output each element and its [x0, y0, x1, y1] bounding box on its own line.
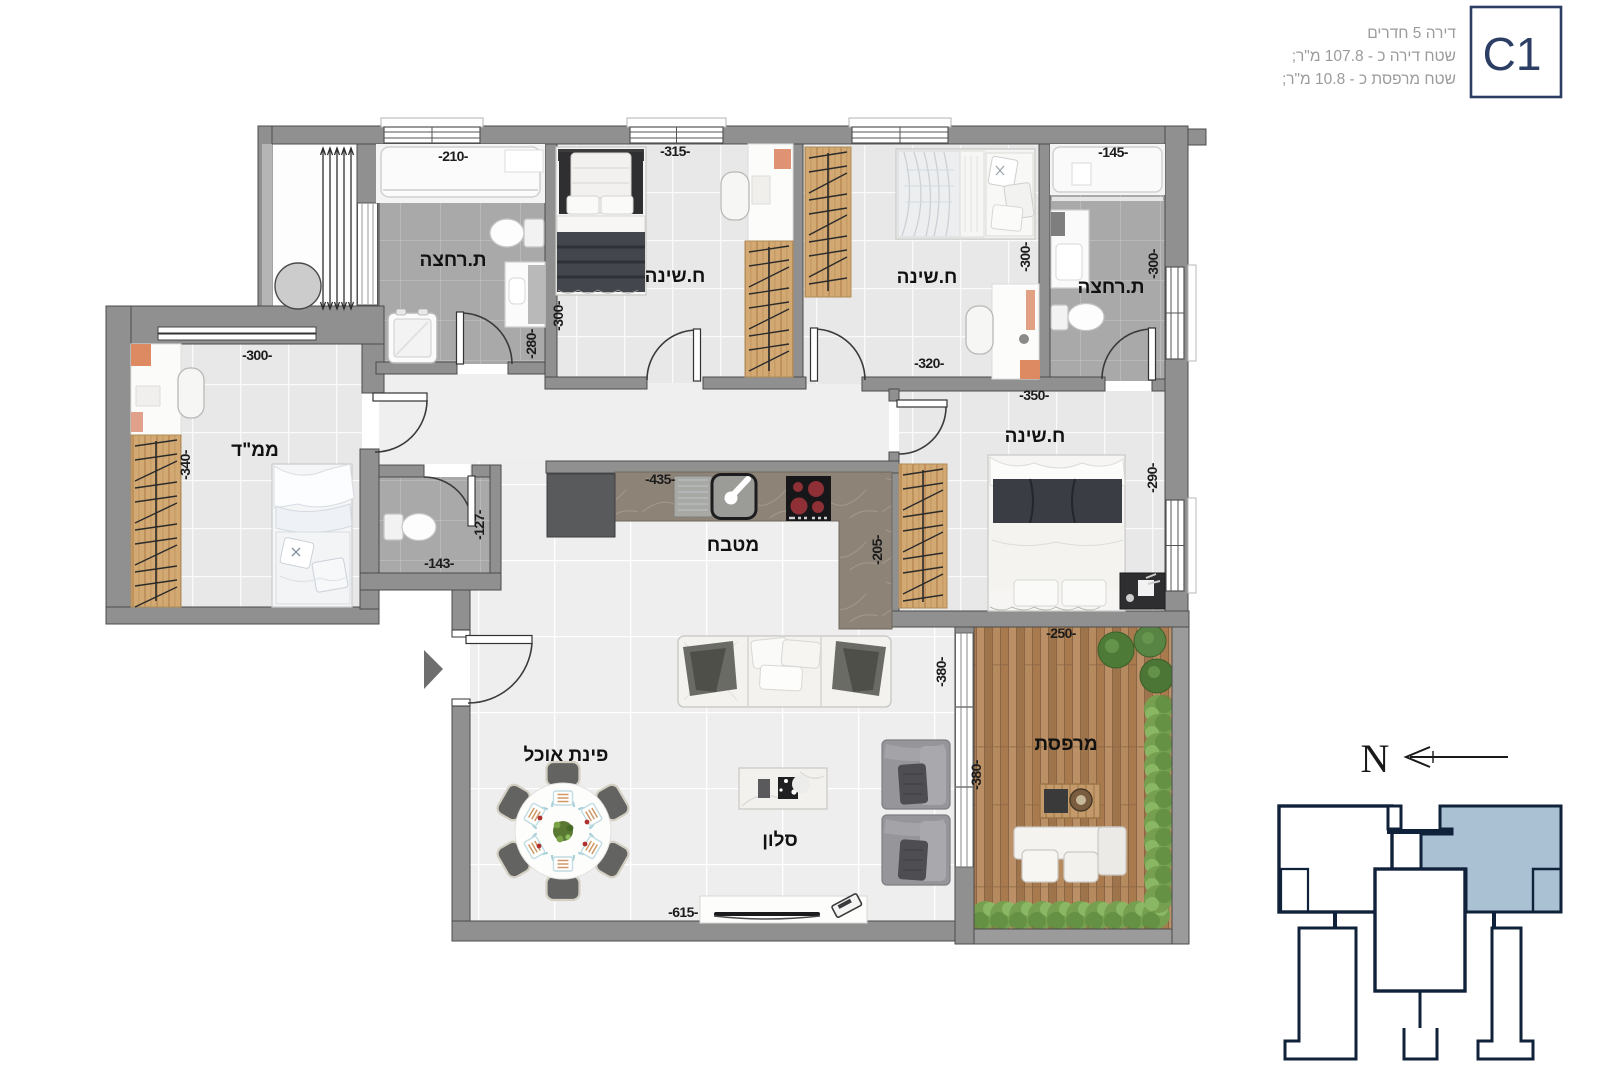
svg-text:-340-: -340-: [177, 449, 193, 480]
svg-text:-300-: -300-: [1145, 248, 1161, 279]
svg-text:סלון: סלון: [762, 830, 798, 851]
svg-text:-205-: -205-: [869, 534, 885, 565]
svg-text:-143-: -143-: [424, 555, 455, 571]
svg-text:-315-: -315-: [660, 143, 691, 159]
svg-text:-615-: -615-: [668, 904, 699, 920]
svg-text:;שטח מרפסת כ - 10.8 מ"ר: ;שטח מרפסת כ - 10.8 מ"ר: [1282, 71, 1456, 88]
svg-text:C1: C1: [1483, 28, 1542, 80]
svg-text:-350-: -350-: [1019, 387, 1050, 403]
svg-text:דירה 5 חדרים: דירה 5 חדרים: [1367, 25, 1456, 42]
svg-text:ח.שינה: ח.שינה: [897, 267, 958, 288]
svg-text:ממ"ד: ממ"ד: [231, 440, 279, 461]
svg-text:ח.שינה: ח.שינה: [1005, 426, 1066, 447]
svg-text:ת.רחצה: ת.רחצה: [419, 250, 486, 271]
svg-text:-145-: -145-: [1098, 144, 1129, 160]
svg-text:-380-: -380-: [933, 656, 949, 687]
svg-text:-127-: -127-: [471, 509, 487, 540]
svg-text:-300-: -300-: [242, 347, 273, 363]
svg-text:-320-: -320-: [914, 355, 945, 371]
svg-text:N: N: [1361, 736, 1390, 781]
svg-text:-300-: -300-: [550, 300, 566, 331]
svg-text:-300-: -300-: [1017, 241, 1033, 272]
svg-text:-280-: -280-: [523, 328, 539, 359]
svg-text:;שטח דירה כ - 107.8 מ"ר: ;שטח דירה כ - 107.8 מ"ר: [1292, 48, 1456, 65]
svg-text:מטבח: מטבח: [707, 535, 759, 556]
svg-text:פינת אוכל: פינת אוכל: [524, 745, 609, 766]
svg-text:-210-: -210-: [438, 148, 469, 164]
svg-text:-380-: -380-: [968, 759, 984, 790]
svg-text:-250-: -250-: [1046, 625, 1077, 641]
svg-text:-290-: -290-: [1144, 462, 1160, 493]
svg-text:-435-: -435-: [645, 471, 676, 487]
svg-text:ח.שינה: ח.שינה: [645, 266, 706, 287]
svg-text:מרפסת: מרפסת: [1034, 734, 1097, 755]
svg-text:ת.רחצה: ת.רחצה: [1077, 277, 1144, 298]
